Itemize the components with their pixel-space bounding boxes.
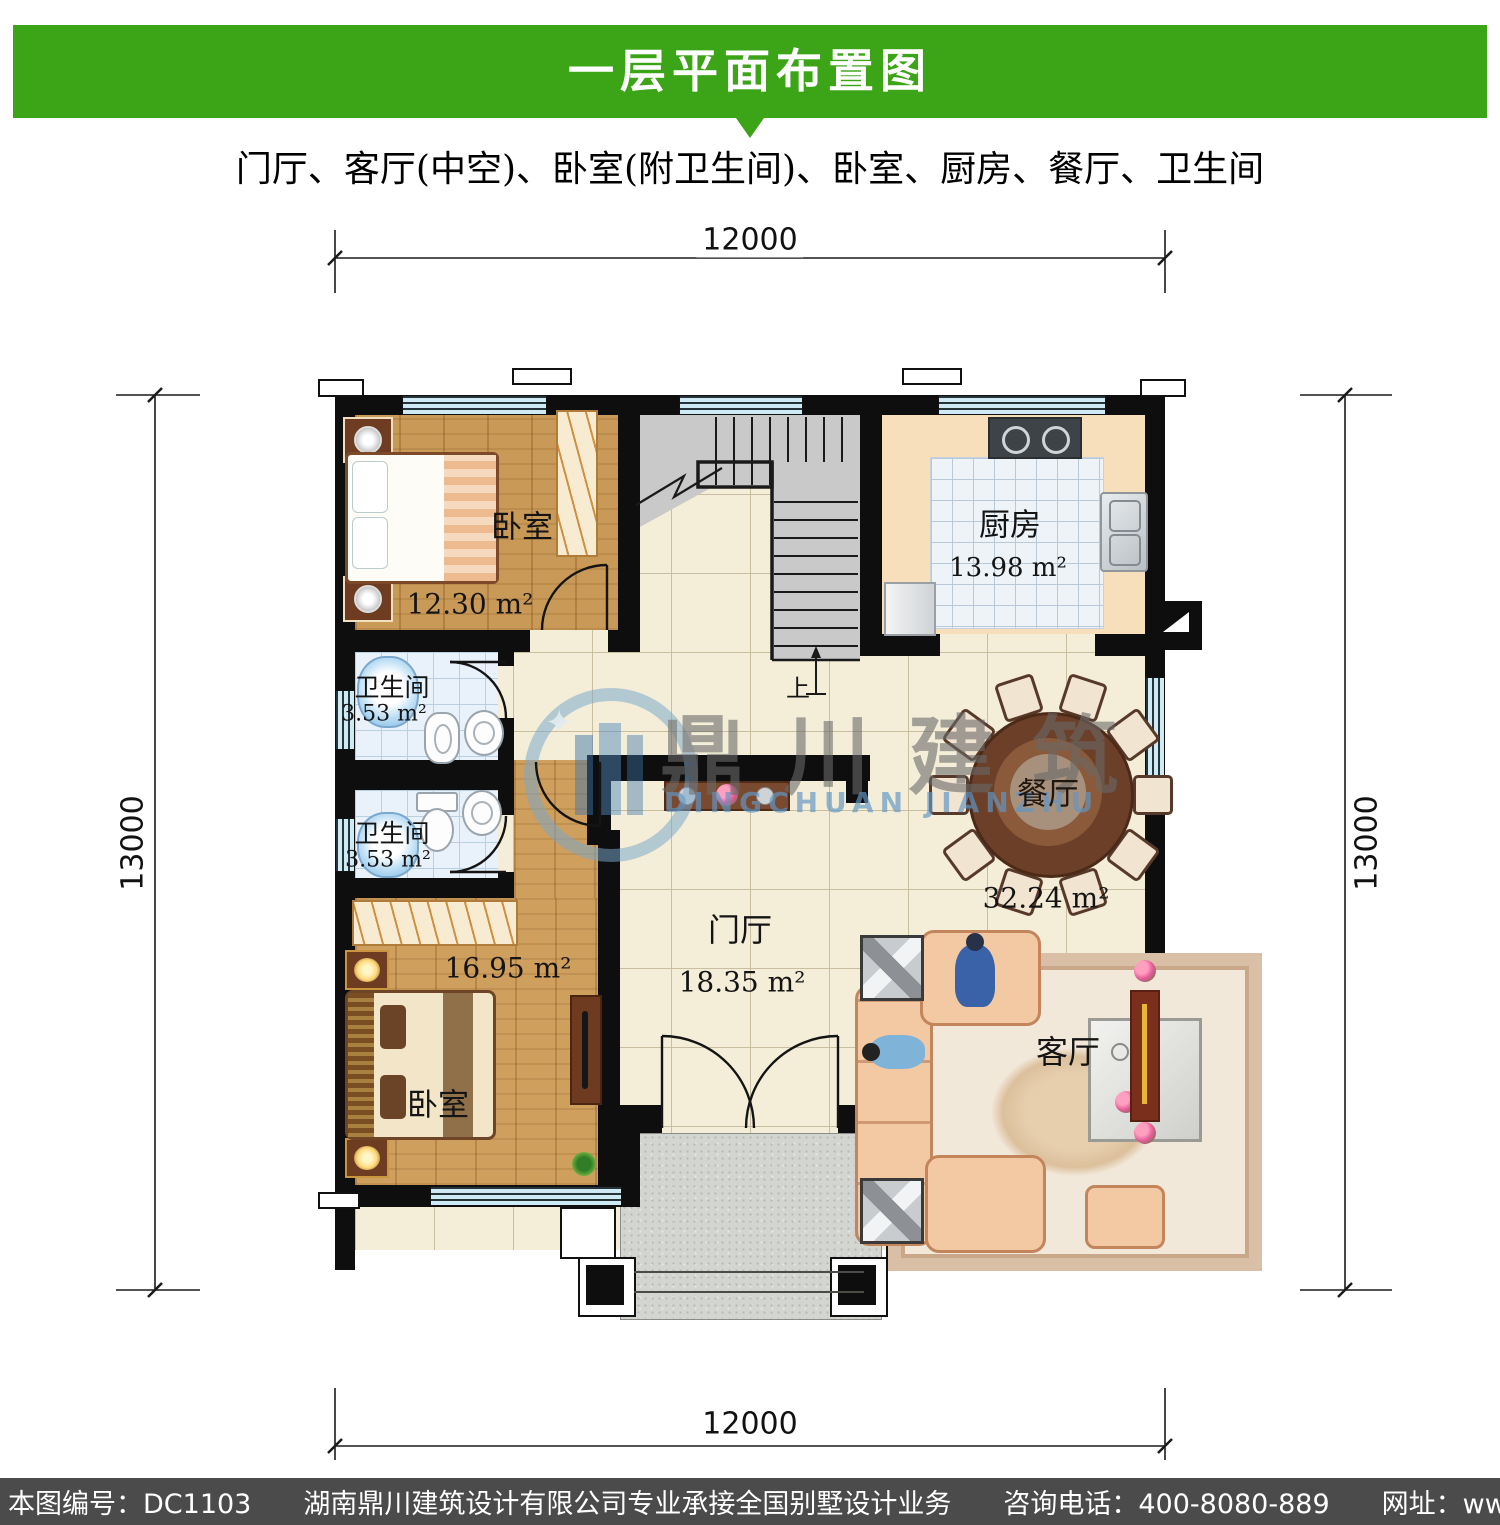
bed-blanket (444, 455, 496, 581)
pillow (380, 1075, 406, 1119)
porch-column-core (586, 1265, 624, 1305)
porch-pier (560, 1207, 616, 1259)
wall (860, 415, 882, 634)
floorplan-page: 一层平面布置图 门厅、客厅(中空)、卧室(附卫生间)、卧室、厨房、餐厅、卫生间 (0, 0, 1500, 1525)
window (679, 395, 803, 415)
kitchen-label: 厨房 (979, 500, 1041, 545)
bath2-area: 3.53 m² (345, 848, 431, 873)
corner-pilaster (318, 1192, 360, 1209)
side-table (860, 935, 924, 1001)
table-dish (1111, 1043, 1129, 1061)
page-title: 一层平面布置图 (0, 25, 1500, 118)
corridor-floor (514, 760, 598, 900)
tv-cabinet (570, 995, 602, 1105)
side-table (860, 1178, 924, 1244)
hall-partition (846, 781, 868, 803)
wall (355, 630, 530, 652)
tv (1142, 1004, 1147, 1104)
pillow (352, 461, 388, 513)
foyer-label: 门厅 (708, 905, 772, 951)
console-table (664, 781, 790, 811)
kitchen-sink (1100, 492, 1148, 572)
gas-stove (988, 417, 1082, 459)
nightstand-lamp (345, 1138, 389, 1178)
armchair (925, 1155, 1046, 1253)
nightstand-lamp (345, 950, 389, 990)
hall-partition (587, 781, 611, 845)
corner-pilaster (1140, 379, 1186, 397)
bathroom-sink (464, 710, 504, 756)
window (430, 1186, 622, 1206)
corner-pilaster (318, 379, 364, 397)
stairs-upper-flight (640, 415, 860, 485)
wall (860, 634, 940, 656)
person (955, 945, 995, 1007)
kitchen-area: 13.98 m² (949, 553, 1067, 583)
dining-label: 餐厅 (1017, 769, 1079, 814)
footer-phone: 咨询电话：400-8080-889 (1003, 1482, 1329, 1521)
squat-toilet-bowl (434, 724, 452, 754)
bedroom2-label: 卧室 (407, 1080, 469, 1125)
bedroom1-label: 卧室 (491, 502, 553, 547)
person-head (966, 933, 984, 951)
burner (1042, 426, 1070, 454)
plant (572, 1152, 596, 1176)
person (870, 1035, 925, 1069)
wall (355, 878, 514, 898)
dim-right: 13000 (1350, 789, 1385, 896)
window (938, 395, 1106, 415)
foyer-area: 18.35 m² (679, 966, 806, 999)
sink-basin (1109, 534, 1141, 566)
squat-toilet (424, 712, 460, 764)
dim-bottom: 12000 (696, 1407, 803, 1442)
corner-pilaster (902, 368, 962, 385)
stairs-down-flight (772, 485, 860, 660)
footer-bar: 本图编号：DC1103 湖南鼎川建筑设计有限公司专业承接全国别墅设计业务 咨询电… (0, 1478, 1500, 1525)
wall (618, 1105, 662, 1133)
footer-website: 网址：www.bstzcs.com (1382, 1482, 1500, 1521)
console-dish (678, 787, 696, 805)
flower-pot (1134, 1122, 1156, 1144)
dining-area: 32.24 m² (983, 882, 1110, 915)
corner-pilaster (512, 368, 572, 385)
wardrobe (556, 410, 598, 557)
bath1-label: 卫生间 (354, 668, 429, 704)
porch-column-core (838, 1265, 876, 1305)
console-flowers (716, 784, 738, 806)
sink-bowl (471, 801, 493, 825)
pillow (352, 517, 388, 569)
dining-chair (1133, 775, 1173, 815)
bedroom2-area: 16.95 m² (445, 952, 572, 985)
bath1-area: 3.53 m² (341, 702, 427, 727)
wall (618, 415, 640, 652)
bathroom-sink (462, 790, 502, 836)
bath2-label: 卫生间 (354, 814, 429, 850)
subtitle: 门厅、客厅(中空)、卧室(附卫生间)、卧室、厨房、餐厅、卫生间 (0, 140, 1500, 192)
wall (355, 760, 514, 790)
footer-plan-no: 本图编号：DC1103 (8, 1482, 251, 1521)
header-pointer (736, 118, 764, 138)
bed-headboard (348, 993, 374, 1137)
hall-partition (587, 755, 870, 781)
pillow (380, 1005, 406, 1049)
fridge (884, 582, 936, 636)
tv (582, 1011, 588, 1089)
living-label: 客厅 (1036, 1027, 1100, 1073)
flower-pot (1134, 960, 1156, 982)
console-dish (756, 787, 774, 805)
dining-chair (929, 775, 969, 815)
bed (345, 452, 499, 584)
window (402, 395, 547, 415)
burner (1002, 426, 1030, 454)
bedroom1-area: 12.30 m² (407, 588, 534, 621)
wardrobe (352, 900, 518, 946)
wall (498, 652, 514, 666)
wall (608, 630, 640, 652)
dim-top: 12000 (696, 223, 803, 258)
tv-cabinet (1130, 990, 1160, 1122)
person-head (862, 1043, 880, 1061)
sink-basin (1109, 500, 1141, 532)
dim-left: 13000 (116, 789, 151, 896)
stairs-up-label: 上 (786, 669, 810, 704)
footstool (1085, 1185, 1165, 1249)
sink-bowl (473, 721, 495, 745)
footer-company: 湖南鼎川建筑设计有限公司专业承接全国别墅设计业务 (303, 1482, 951, 1521)
